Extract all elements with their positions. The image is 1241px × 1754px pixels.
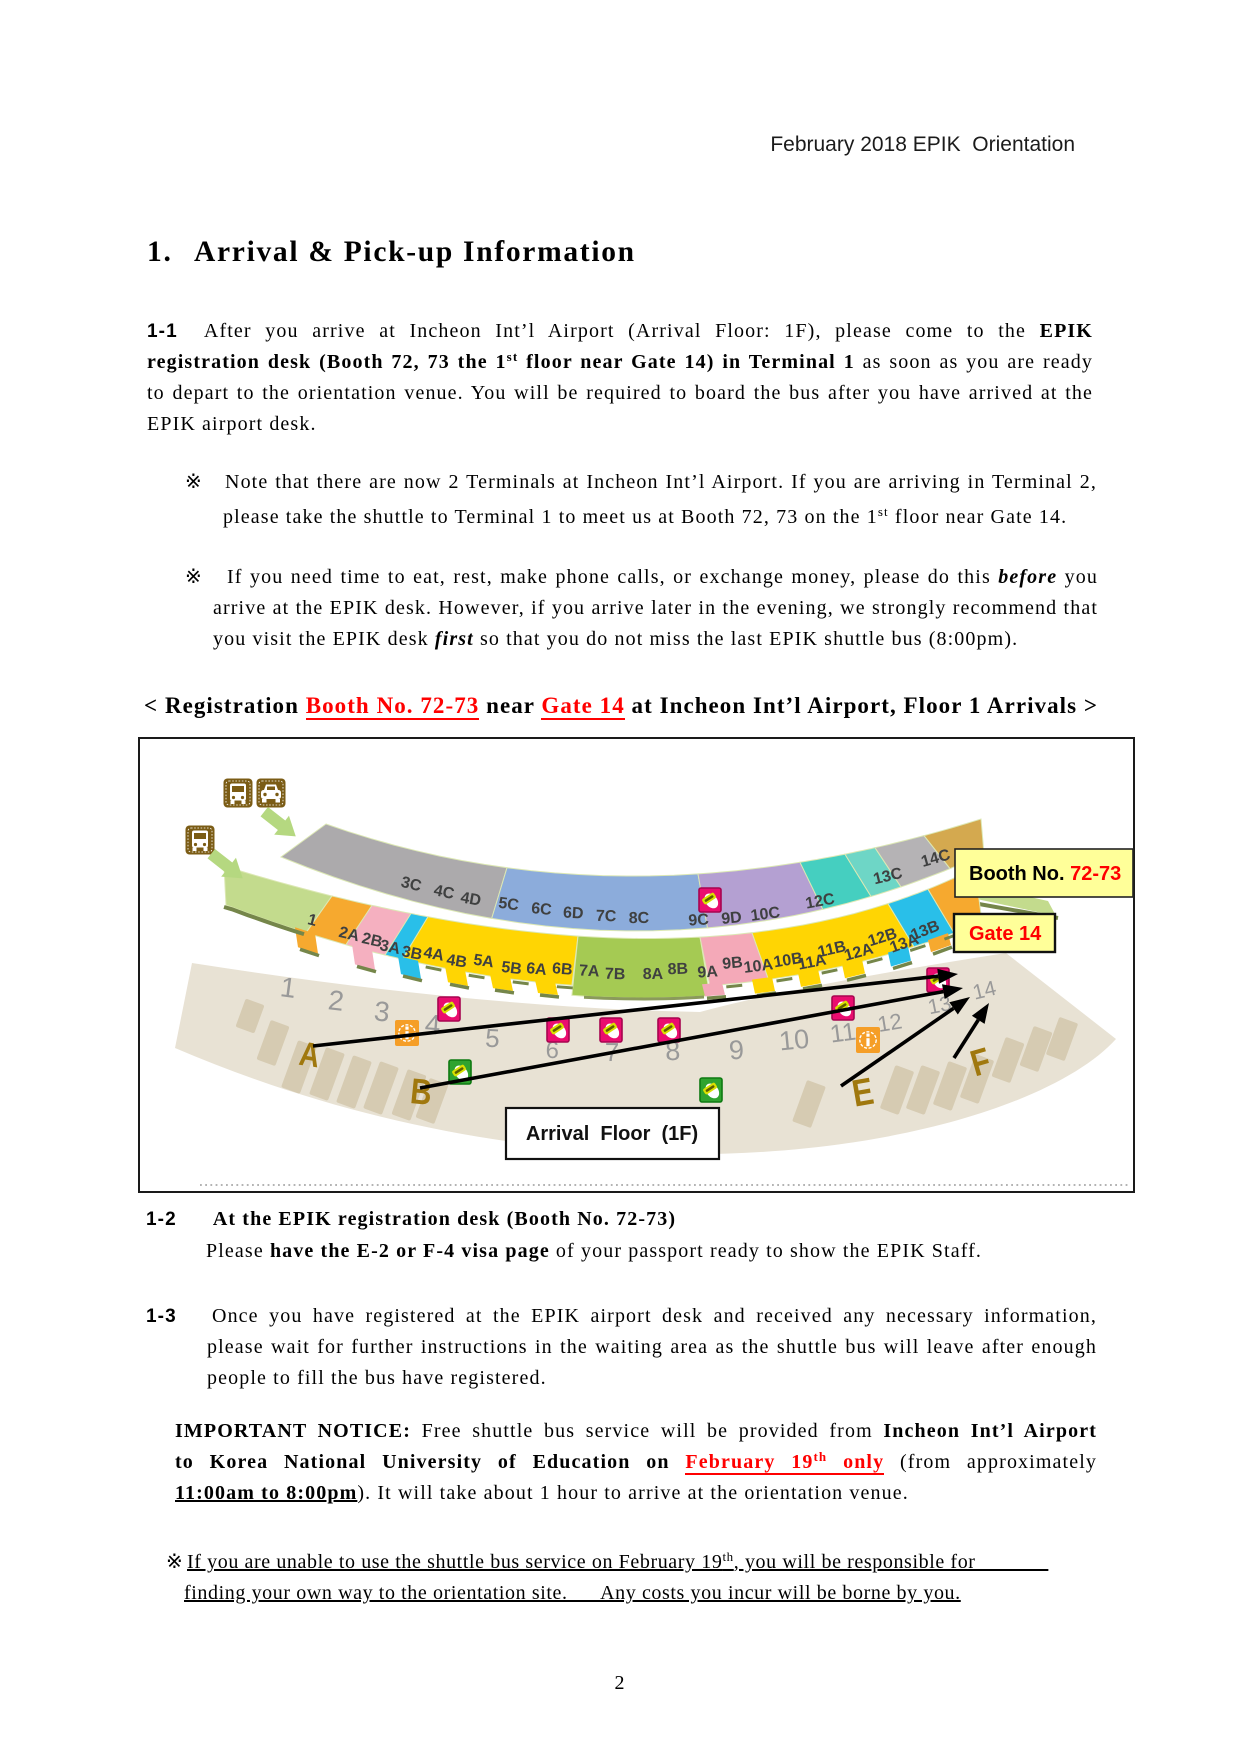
svg-text:6A: 6A — [525, 960, 548, 979]
svg-text:4B: 4B — [445, 952, 468, 972]
svg-text:7A: 7A — [579, 962, 601, 980]
svg-text:9B: 9B — [722, 954, 744, 973]
svg-text:6C: 6C — [530, 900, 552, 919]
svg-text:10: 10 — [778, 1024, 811, 1057]
svg-text:8A: 8A — [643, 966, 664, 983]
svg-text:9A: 9A — [697, 963, 719, 981]
svg-text:11: 11 — [828, 1018, 857, 1049]
svg-text:3: 3 — [373, 995, 392, 1027]
svg-text:9C: 9C — [688, 911, 710, 929]
svg-text:7C: 7C — [596, 908, 617, 926]
svg-text:5A: 5A — [472, 952, 495, 972]
svg-text:7B: 7B — [605, 966, 626, 984]
svg-text:5C: 5C — [497, 895, 520, 915]
svg-text:9: 9 — [728, 1035, 745, 1066]
svg-text:Gate 14: Gate 14 — [969, 923, 1042, 945]
svg-text:5B: 5B — [500, 959, 522, 978]
svg-text:Arrival Floor (1F): Arrival Floor (1F) — [526, 1123, 698, 1145]
svg-text:6B: 6B — [551, 960, 573, 979]
svg-text:6D: 6D — [563, 904, 584, 922]
svg-text:9D: 9D — [721, 909, 743, 928]
svg-text:8C: 8C — [629, 910, 650, 927]
svg-text:B: B — [409, 1070, 434, 1112]
svg-text:4D: 4D — [459, 889, 482, 909]
svg-text:8B: 8B — [667, 961, 688, 979]
svg-text:Booth No. 72-73: Booth No. 72-73 — [969, 863, 1121, 885]
